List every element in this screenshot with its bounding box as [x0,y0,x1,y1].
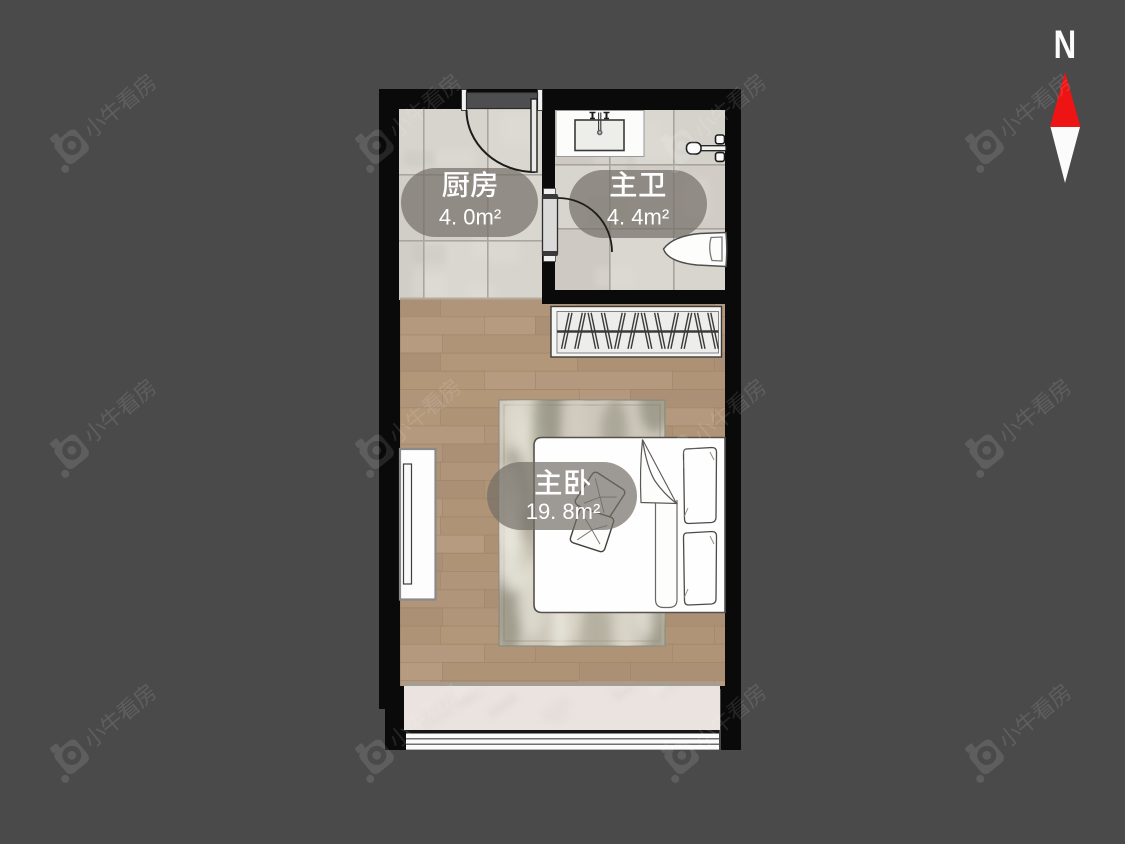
svg-text:4. 4m²: 4. 4m² [607,205,669,230]
svg-text:N: N [1054,22,1077,67]
svg-text:19. 8m²: 19. 8m² [526,499,601,524]
svg-text:4. 0m²: 4. 0m² [439,205,501,230]
